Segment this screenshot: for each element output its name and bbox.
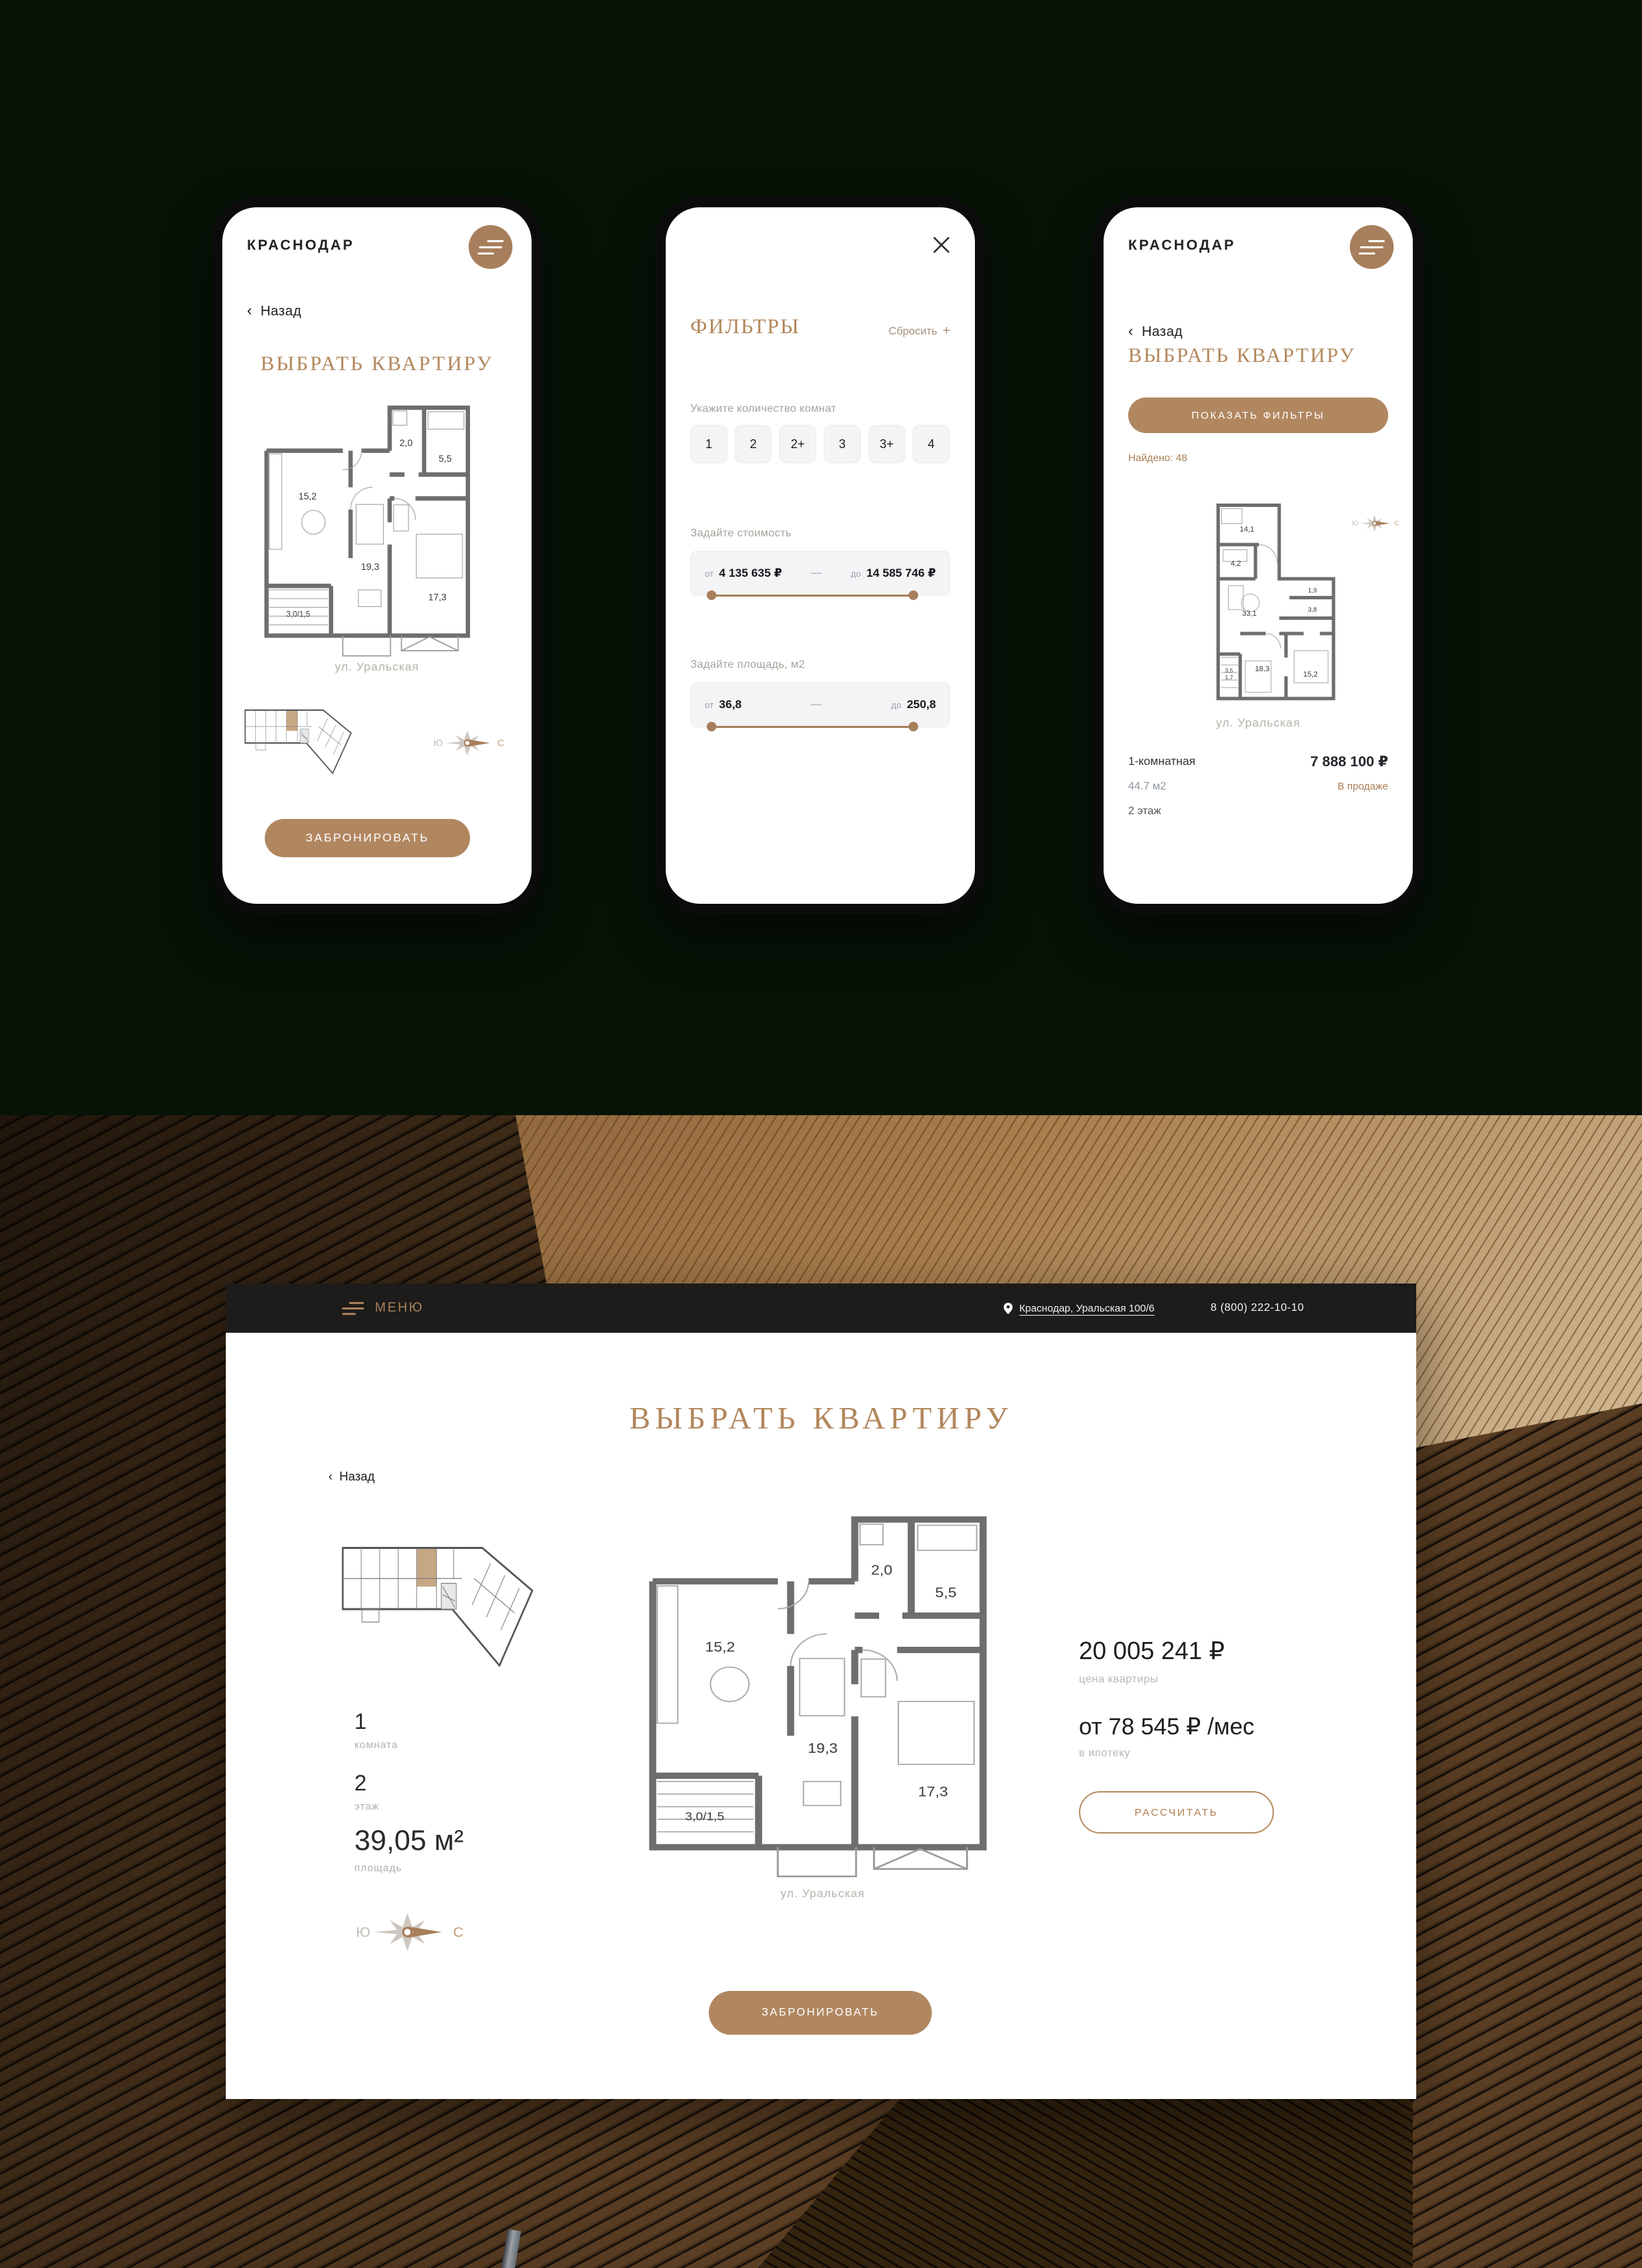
to-label: до [851,569,861,579]
apartment-price: 20 005 241 ₽ [1079,1637,1225,1665]
back-link[interactable]: ‹Назад [1128,322,1183,340]
phone3-screen: КРАСНОДАР ‹Назад ВЫБРАТЬ КВАРТИРУ ПОКАЗА… [1104,207,1413,904]
compass-north-label: С [453,1925,463,1940]
calculate-button[interactable]: РАССЧИТАТЬ [1079,1791,1274,1834]
back-chevron-icon: ‹ [247,302,252,319]
menu-button[interactable] [1350,225,1394,269]
price-range: от4 135 635 ₽ — до14 585 746 ₽ [690,551,950,596]
slider-handle-max[interactable] [909,590,918,600]
city-label: КРАСНОДАР [1128,237,1236,254]
design-board: КРАСНОДАР ‹Назад ВЫБРАТЬ КВАРТИРУ [0,0,1642,2268]
room-option-1[interactable]: 1 [690,425,727,463]
stat-rooms-label: комната [354,1739,398,1751]
hamburger-icon [479,246,502,248]
listing-price: 7 888 100 ₽ [1310,753,1388,770]
stat-rooms-value: 1 [354,1709,367,1734]
room-option-3plus[interactable]: 3+ [868,425,905,463]
hamburger-icon [487,240,504,242]
street-label: ул. Уральская [643,1887,1002,1901]
listing-status: В продаже [1338,781,1388,792]
room-area-label: 18,3 [1255,665,1269,673]
back-label: Назад [1142,324,1183,339]
building-floor-plan[interactable] [243,704,354,782]
compass-north-label: С [497,738,504,748]
building-floor-plan[interactable] [339,1537,537,1682]
price-from-value: 4 135 635 ₽ [719,566,782,580]
room-area-label: 3,0/1,5 [286,611,310,619]
listing-floor: 2 этаж [1128,805,1161,818]
room-area-label: 3,8 [1308,606,1317,614]
page-title: ВЫБРАТЬ КВАРТИРУ [1128,344,1355,367]
street-label: ул. Уральская [1104,716,1413,730]
apartment-price-label: цена квартиры [1079,1673,1158,1686]
back-link[interactable]: ‹Назад [247,302,302,320]
street-label: ул. Уральская [222,660,532,674]
area-range: от36,8 — до250,8 [690,682,950,727]
area-to-value: 250,8 [907,698,936,712]
area-range-slider[interactable] [712,726,913,729]
address-text: Краснодар, Уральская 100/6 [1019,1303,1155,1314]
address-link[interactable]: Краснодар, Уральская 100/6 [1004,1303,1155,1314]
plus-icon: + [943,324,950,338]
compass-icon: Ю С [348,1910,467,1954]
price-range-slider[interactable] [712,595,913,597]
back-label: Назад [261,304,302,319]
compass-north-label: С [1394,520,1399,527]
location-pin-icon [1004,1303,1013,1314]
from-label: от [705,569,714,579]
slider-handle-min[interactable] [707,590,716,600]
hamburger-icon [1368,240,1385,242]
compass-south-label: Ю [434,738,443,748]
hamburger-icon [342,1302,364,1315]
room-area-label: 17,3 [428,591,447,602]
compass-icon: Ю С [428,729,507,757]
area-range-field[interactable]: от36,8 — до250,8 [690,682,950,727]
listing-type: 1-комнатная [1128,755,1195,768]
from-label: от [705,700,714,710]
area-range-label: Задайте площадь, м2 [690,659,805,671]
city-label: КРАСНОДАР [247,237,354,254]
room-area-label: 1,7 [1225,674,1234,681]
to-label: до [891,700,902,710]
range-dash: — [811,567,822,579]
room-area-label: 1,9 [1308,587,1317,595]
stat-floor-value: 2 [354,1771,367,1796]
mortgage-label: в ипотеку [1079,1747,1130,1760]
room-area-label: 14,1 [1240,525,1254,534]
compass-south-label: Ю [1352,520,1358,527]
page-title: ВЫБРАТЬ КВАРТИРУ [222,352,532,376]
hamburger-icon [1359,252,1375,255]
close-icon[interactable] [931,235,952,255]
room-area-label: 5,5 [935,1585,956,1601]
mortgage-price: от 78 545 ₽ /мес [1079,1713,1254,1741]
slider-track [712,726,913,728]
listing-area: 44.7 м2 [1128,781,1166,793]
phone2-screen: ФИЛЬТРЫ Сбросить+ Укажите количество ком… [666,207,975,904]
found-count: Найдено: 48 [1128,452,1187,464]
compass-icon: Ю С [1348,514,1400,533]
menu-button[interactable]: МЕНЮ [342,1301,423,1316]
show-filters-button[interactable]: ПОКАЗАТЬ ФИЛЬТРЫ [1128,397,1388,433]
website-panel: МЕНЮ Краснодар, Уральская 100/6 8 (800) … [226,1283,1416,2099]
phone1-screen: КРАСНОДАР ‹Назад ВЫБРАТЬ КВАРТИРУ [222,207,532,904]
reserve-button[interactable]: ЗАБРОНИРОВАТЬ [709,1991,932,2035]
reserve-button[interactable]: ЗАБРОНИРОВАТЬ [265,819,470,857]
room-area-label: 19,3 [808,1741,838,1756]
room-area-label: 4,2 [1231,560,1241,568]
range-dash: — [811,699,822,711]
room-option-2[interactable]: 2 [735,425,772,463]
reset-filters-link[interactable]: Сбросить+ [889,324,950,339]
area-from-value: 36,8 [719,698,742,712]
price-range-field[interactable]: от4 135 635 ₽ — до14 585 746 ₽ [690,551,950,596]
rooms-count-label: Укажите количество комнат [690,403,836,415]
stat-area-value: 39,05 м² [354,1824,464,1857]
back-link[interactable]: ‹Назад [328,1470,375,1484]
back-chevron-icon: ‹ [328,1470,333,1483]
menu-label: МЕНЮ [375,1301,423,1316]
room-area-label: 15,2 [1303,670,1318,679]
reset-label: Сбросить [889,326,937,337]
room-area-label: 17,3 [918,1784,948,1800]
apartment-floor-plan: 14,1 4,2 33,1 1,9 3,8 3,5 1,7 18,3 15,2 [1177,500,1340,705]
site-header: МЕНЮ Краснодар, Уральская 100/6 8 (800) … [226,1283,1416,1333]
rooms-options: 1 2 2+ 3 3+ 4 [690,425,950,463]
menu-button[interactable] [469,225,512,269]
filters-title: ФИЛЬТРЫ [690,314,800,339]
slider-handle-max[interactable] [909,722,918,731]
apartment-floor-plan: 15,2 2,0 5,5 19,3 17,3 3,0/1,5 [643,1513,1002,1879]
slider-track [712,595,913,597]
room-area-label: 15,2 [705,1639,735,1655]
stat-floor-label: этаж [354,1801,379,1812]
hamburger-icon [1360,246,1383,248]
room-area-label: 2,0 [400,437,413,448]
slider-handle-min[interactable] [707,722,716,731]
phone-mockup-apartment: КРАСНОДАР ‹Назад ВЫБРАТЬ КВАРТИРУ [212,197,542,914]
room-area-label: 15,2 [298,491,317,501]
room-option-3[interactable]: 3 [824,425,861,463]
phone-number[interactable]: 8 (800) 222-10-10 [1210,1302,1304,1314]
room-area-label: 2,0 [871,1562,892,1578]
phone-mockup-filters: ФИЛЬТРЫ Сбросить+ Укажите количество ком… [655,197,985,914]
compass-south-label: Ю [356,1925,370,1940]
apartment-floor-plan: 15,2 2,0 5,5 19,3 17,3 3,0/1,5 [261,403,480,657]
room-option-2plus[interactable]: 2+ [779,425,816,463]
room-area-label: 33,1 [1242,610,1257,618]
page-title: ВЫБРАТЬ КВАРТИРУ [226,1400,1416,1436]
room-area-label: 19,3 [361,561,380,572]
room-area-label: 3,0/1,5 [685,1810,724,1823]
room-option-4[interactable]: 4 [913,425,950,463]
price-range-label: Задайте стоимость [690,527,792,540]
hamburger-icon [478,252,494,255]
phone-mockup-results: КРАСНОДАР ‹Назад ВЫБРАТЬ КВАРТИРУ ПОКАЗА… [1093,197,1423,914]
back-label: Назад [339,1470,375,1483]
back-chevron-icon: ‹ [1128,322,1134,339]
price-to-value: 14 585 746 ₽ [866,566,936,580]
room-area-label: 5,5 [439,453,452,464]
room-area-label: 3,5 [1225,667,1234,674]
stat-area-label: площадь [354,1862,402,1874]
